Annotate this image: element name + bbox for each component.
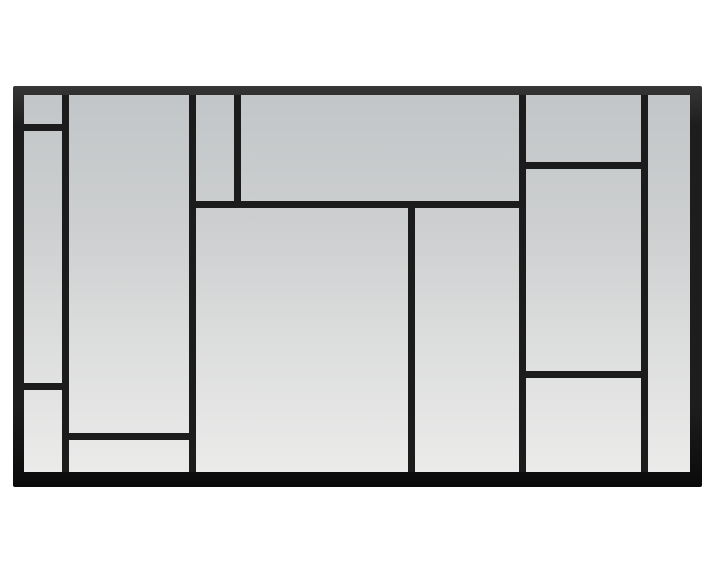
mullion-v-top-narrow (234, 95, 241, 208)
mullion-v-left-column (62, 95, 69, 472)
mullion-h-right-top (519, 162, 648, 169)
wall-mirror (13, 86, 702, 487)
mullion-h-left-top (24, 124, 69, 131)
mullion-h-right-lower (519, 371, 648, 378)
mullion-h-left-mid-bottom (62, 433, 196, 440)
mullion-h-left-lower (24, 383, 69, 390)
mullion-v-right-column (641, 95, 648, 472)
mullion-v-left-mid (189, 95, 196, 472)
mullion-v-right-mid (519, 95, 526, 472)
mullion-v-center (408, 201, 415, 472)
mirror-glass (24, 95, 690, 472)
mullion-h-center-top (189, 201, 526, 208)
product-photo (0, 0, 720, 563)
